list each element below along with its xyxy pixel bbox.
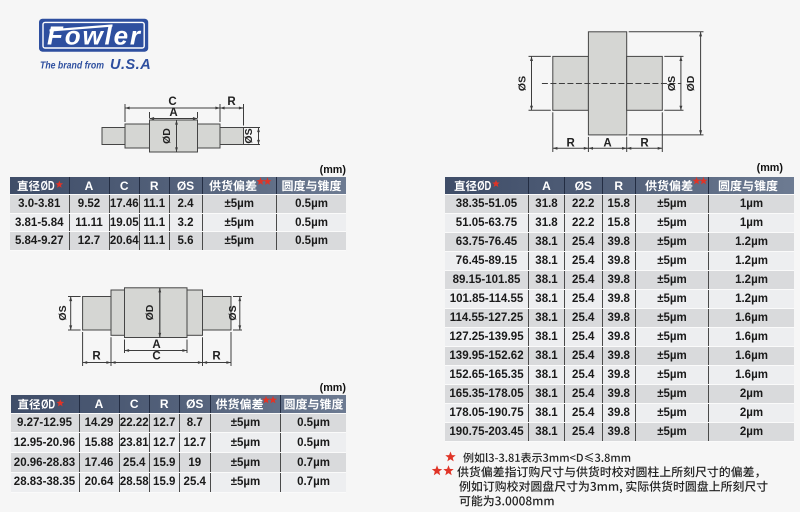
svg-text:A: A: [152, 339, 160, 351]
svg-text:R: R: [92, 351, 101, 363]
svg-text:C: C: [152, 351, 160, 363]
svg-text:ØS: ØS: [57, 305, 69, 320]
svg-text:C: C: [168, 96, 176, 108]
svg-text:R: R: [566, 138, 575, 150]
svg-text:ØS: ØS: [243, 128, 255, 143]
svg-text:ØS: ØS: [517, 76, 529, 91]
svg-text:R: R: [212, 351, 221, 363]
svg-text:R: R: [227, 96, 236, 108]
svg-text:A: A: [603, 138, 611, 150]
svg-text:ØD: ØD: [144, 304, 156, 320]
svg-text:The brand from: The brand from: [40, 59, 104, 71]
svg-text:U.S.A: U.S.A: [110, 57, 151, 73]
svg-text:A: A: [169, 107, 177, 119]
svg-text:ØD: ØD: [685, 75, 697, 91]
svg-text:Fowler: Fowler: [47, 21, 142, 51]
svg-text:ØD: ØD: [161, 128, 173, 144]
svg-text:ØS: ØS: [666, 76, 678, 91]
svg-text:ØS: ØS: [227, 305, 239, 320]
svg-text:R: R: [640, 138, 649, 150]
